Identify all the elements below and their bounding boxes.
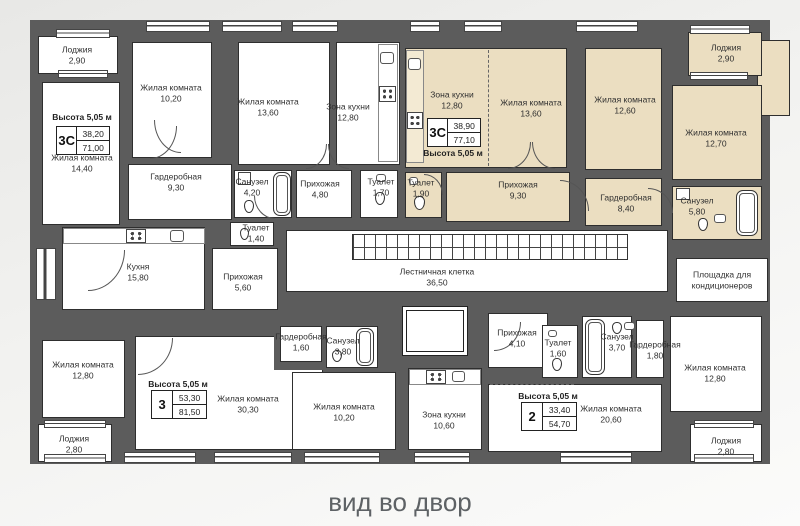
sink-icon	[452, 371, 465, 382]
ceiling-height-label: Высота 5,05 м	[52, 112, 112, 122]
room-label: Жилая комната12,60	[594, 94, 655, 115]
room-label: Жилая комната12,70	[685, 127, 746, 148]
bathtub-icon	[273, 172, 291, 216]
room-label: Жилая комната30,30	[217, 393, 278, 414]
apartment-type: 2	[522, 403, 543, 430]
entrance-door	[36, 248, 56, 300]
room-label: Лестничная клетка36,50	[400, 266, 474, 287]
stairs	[352, 234, 628, 260]
room-label: Жилая комната10,20	[140, 82, 201, 103]
room-label: Лоджия2,80	[711, 435, 741, 456]
ceiling-height-label: Высота 5,05 м	[148, 379, 208, 389]
window	[690, 72, 748, 80]
window	[560, 452, 632, 463]
window	[44, 454, 106, 463]
apartment-type: 3	[152, 391, 173, 418]
room-label: Санузел3,80	[326, 335, 359, 356]
ceiling-height-label: Высота 5,05 м	[518, 391, 578, 401]
room-label: Прихожая4,80	[300, 178, 339, 199]
room-label: Лоджия2,90	[711, 42, 741, 63]
elevator-cab	[402, 306, 468, 356]
window	[410, 21, 440, 32]
sink-icon	[380, 52, 394, 64]
stove-icon	[426, 370, 446, 384]
room-label: Жилая комната13,60	[500, 97, 561, 118]
window	[690, 25, 750, 34]
room-label: Жилая комната14,40	[51, 152, 112, 173]
apartment-info-box-3: 3 53,3081,50	[151, 390, 207, 419]
apartment-type: 3С	[428, 119, 448, 146]
window	[146, 21, 210, 32]
stove-icon	[379, 86, 396, 102]
sink-icon	[548, 330, 557, 337]
room-label: Гардеробная9,30	[150, 171, 201, 192]
zone-divider-dashed	[488, 50, 489, 166]
window	[464, 21, 502, 32]
room-label: Прихожая9,30	[498, 179, 537, 200]
room-label: Кухня15,80	[127, 261, 150, 282]
room-label: Прихожая5,60	[223, 271, 262, 292]
window	[222, 21, 282, 32]
room-label: Санузел4,20	[235, 176, 268, 197]
room-label: Туалет1,40	[243, 222, 270, 243]
room-label: Туалет1,90	[408, 177, 435, 198]
window	[576, 21, 638, 32]
apartment-info-box-3c-highlight: 3С 38,9077,10	[427, 118, 481, 147]
window	[214, 452, 292, 463]
window	[58, 70, 108, 78]
room-label: Гардеробная8,40	[600, 192, 651, 213]
room-label: Жилая комната13,60	[237, 96, 298, 117]
window	[292, 21, 338, 32]
window	[694, 420, 754, 428]
room-label: Прихожая4,10	[497, 327, 536, 348]
room-label: Зона кухни10,60	[422, 409, 465, 430]
zone-divider-dashed-2	[490, 384, 574, 385]
room-label: Жилая комната12,80	[52, 359, 113, 380]
room-label: Гардеробная1,60	[275, 331, 326, 352]
view-caption: вид во двор	[0, 487, 800, 518]
room-label: Лоджия2,90	[62, 44, 92, 65]
room-label: Зона кухни12,80	[430, 89, 473, 110]
stove-icon	[407, 112, 423, 129]
window	[56, 29, 110, 38]
apartment-type: 3С	[57, 127, 77, 154]
room-label: Туалет1,60	[545, 337, 572, 358]
sink-icon	[408, 58, 421, 70]
sink-icon	[624, 322, 635, 330]
room-label: Санузел5,80	[680, 195, 713, 216]
room-label: Лоджия2,80	[59, 433, 89, 454]
room-label: Жилая комната12,80	[684, 362, 745, 383]
room-label: Жилая комната10,20	[313, 401, 374, 422]
floor-plan-canvas: Лоджия2,90 Жилая комната10,20 Жилая комн…	[0, 0, 800, 526]
room-label: Жилая комната20,60	[580, 403, 641, 424]
apartment-info-box-3c-left: 3С 38,2071,00	[56, 126, 110, 155]
room-label: Площадка для кондиционеров	[682, 269, 762, 290]
window	[44, 420, 106, 428]
stove-icon	[126, 229, 146, 243]
room-label: Туалет1,70	[368, 176, 395, 197]
window	[414, 452, 470, 463]
sink-icon	[714, 214, 726, 223]
sink-icon	[170, 230, 184, 242]
window	[304, 452, 380, 463]
room-label: Гардеробная1,80	[629, 339, 680, 360]
room-label: Зона кухни12,80	[326, 101, 369, 122]
apartment-info-box-2: 2 33,4054,70	[521, 402, 577, 431]
window	[124, 452, 196, 463]
ceiling-height-label: Высота 5,05 м	[423, 148, 483, 158]
bathtub-icon	[736, 190, 758, 236]
